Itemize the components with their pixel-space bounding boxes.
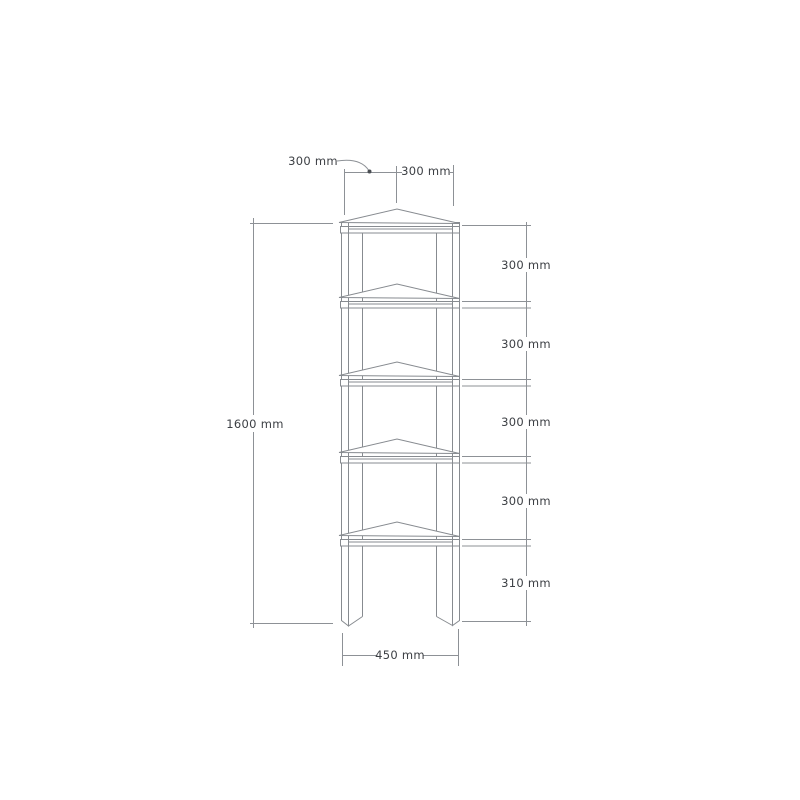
shelf-top-surface xyxy=(339,522,460,537)
corner-shelf-technical-drawing: 1600 mm 300 mm 300 mm 300 mm 300 mm 300 … xyxy=(0,0,800,800)
dimension-total-height: 1600 mm xyxy=(226,218,333,628)
shelf-5 xyxy=(339,522,460,546)
dim-label-spacing-2: 300 mm xyxy=(501,337,551,351)
shelf-board xyxy=(341,302,460,309)
dim-label-top-right: 300 mm xyxy=(401,164,451,178)
dim-label-total-height: 1600 mm xyxy=(226,417,283,431)
right-side-panel xyxy=(453,223,460,626)
dim-label-spacing-3: 300 mm xyxy=(501,415,551,429)
dimension-base-width: 450 mm xyxy=(343,629,459,666)
shelf-1 xyxy=(339,209,460,233)
dim-label-top-left: 300 mm xyxy=(288,154,338,168)
shelf-top-surface xyxy=(339,439,460,454)
dim-label-base-width: 450 mm xyxy=(375,648,425,662)
drawing-page: 1600 mm 300 mm 300 mm 300 mm 300 mm 300 … xyxy=(0,0,800,800)
right-foot-edge xyxy=(437,617,453,626)
leader-dot xyxy=(368,170,372,174)
leader-line xyxy=(337,160,369,170)
shelf-unit-outline xyxy=(339,209,460,626)
shelf-2 xyxy=(339,284,460,308)
shelf-board xyxy=(341,380,460,387)
dim-label-spacing-4: 300 mm xyxy=(501,494,551,508)
dim-label-spacing-5: 310 mm xyxy=(501,576,551,590)
shelf-top-surface xyxy=(339,284,460,299)
shelf-board xyxy=(341,540,460,547)
left-side-panel xyxy=(342,223,349,627)
dimension-shelf-spacings: 300 mm 300 mm 300 mm 300 mm 310 mm xyxy=(462,222,551,626)
shelf-top-surface xyxy=(339,209,460,224)
shelf-top-surface xyxy=(339,362,460,377)
shelf-4 xyxy=(339,439,460,463)
shelf-3 xyxy=(339,362,460,386)
dimension-top: 300 mm 300 mm xyxy=(288,154,453,215)
left-foot-edge xyxy=(349,617,363,627)
dim-label-spacing-1: 300 mm xyxy=(501,258,551,272)
shelf-board xyxy=(341,457,460,464)
shelf-board xyxy=(341,227,460,234)
